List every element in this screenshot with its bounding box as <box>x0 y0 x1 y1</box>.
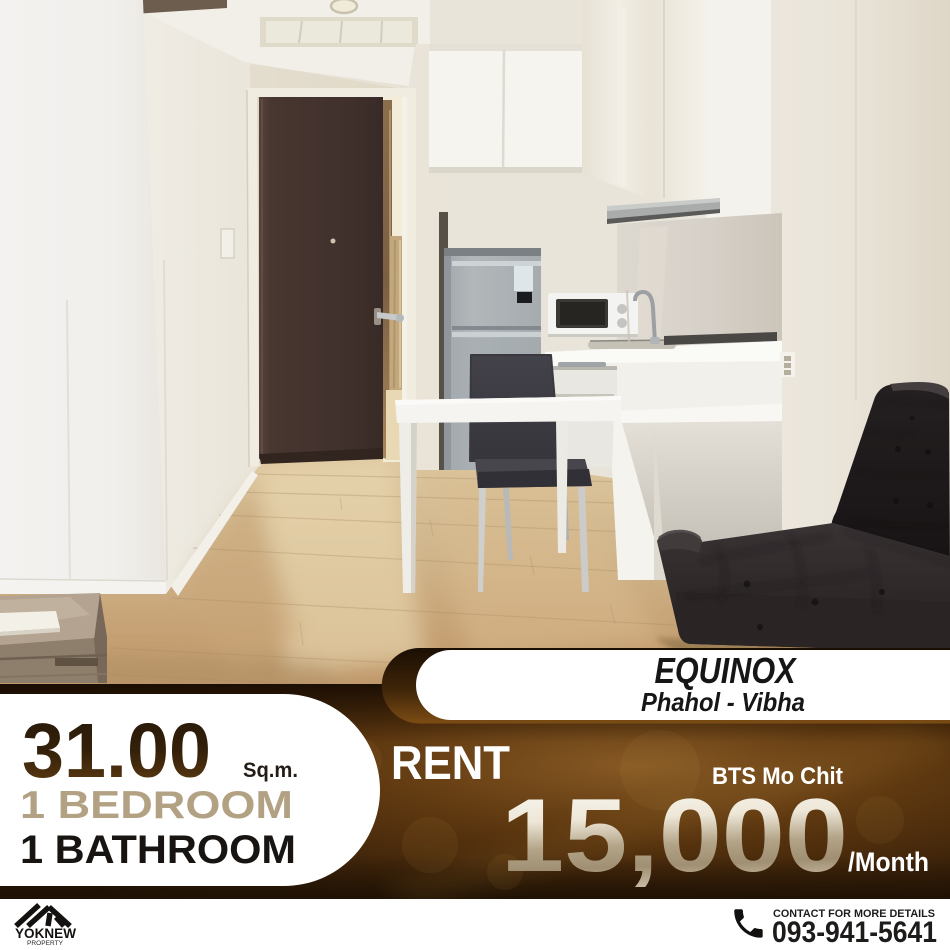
svg-text:15,000: 15,000 <box>501 778 848 894</box>
svg-text:31.00: 31.00 <box>22 708 211 794</box>
svg-text:Phahol - Vibha: Phahol - Vibha <box>641 687 805 717</box>
svg-text:RENT: RENT <box>391 736 510 789</box>
svg-text:EQUINOX: EQUINOX <box>655 650 798 691</box>
svg-text:YOKNEW: YOKNEW <box>15 926 76 941</box>
svg-text:Sq.m.: Sq.m. <box>243 758 298 782</box>
svg-text:093-941-5641: 093-941-5641 <box>772 916 937 949</box>
svg-text:PROPERTY: PROPERTY <box>27 940 64 947</box>
svg-text:/Month: /Month <box>848 847 929 877</box>
svg-text:1 BATHROOM: 1 BATHROOM <box>20 828 296 872</box>
svg-text:1 BEDROOM: 1 BEDROOM <box>20 784 293 827</box>
